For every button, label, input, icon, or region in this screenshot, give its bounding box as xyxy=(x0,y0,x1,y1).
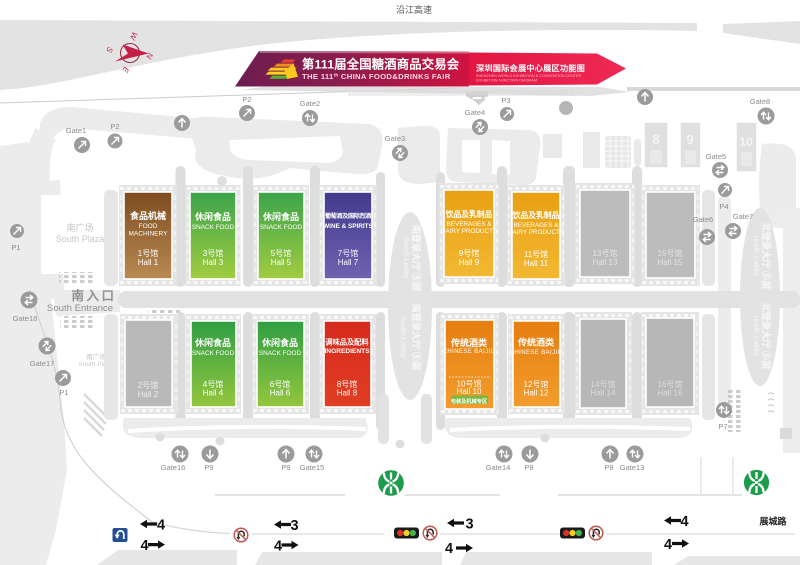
svg-text:7号馆: 7号馆 xyxy=(338,248,358,258)
svg-text:P9: P9 xyxy=(204,463,213,472)
svg-text:Hall 6: Hall 6 xyxy=(270,389,291,398)
svg-text:THE 111th CHINA FOOD&DRINKS FA: THE 111th CHINA FOOD&DRINKS FAIR xyxy=(302,72,451,81)
svg-text:Hall 10: Hall 10 xyxy=(457,387,482,396)
svg-text:2号馆: 2号馆 xyxy=(138,380,158,390)
svg-text:4号馆: 4号馆 xyxy=(203,379,223,389)
svg-text:Hall 14: Hall 14 xyxy=(591,389,616,398)
svg-text:Gate2: Gate2 xyxy=(300,99,320,108)
svg-text:P1: P1 xyxy=(11,243,20,252)
svg-text:9号馆: 9号馆 xyxy=(459,248,479,258)
svg-text:深圳国际会展中心展区功能图: 深圳国际会展中心展区功能图 xyxy=(476,63,585,73)
svg-text:P3: P3 xyxy=(501,96,510,105)
svg-text:南广场: 南广场 xyxy=(86,352,106,361)
svg-text:12号馆: 12号馆 xyxy=(524,379,549,389)
svg-text:Hall 1: Hall 1 xyxy=(138,258,159,267)
svg-text:Gate5: Gate5 xyxy=(706,152,726,161)
svg-text:8: 8 xyxy=(652,132,659,147)
svg-text:Gate6: Gate6 xyxy=(693,215,713,224)
svg-text:16号馆: 16号馆 xyxy=(658,379,683,389)
svg-text:调味品及配料: 调味品及配料 xyxy=(325,338,369,347)
svg-text:10: 10 xyxy=(739,135,753,149)
svg-text:WINE & SPIRITS: WINE & SPIRITS xyxy=(323,223,373,230)
svg-text:4: 4 xyxy=(140,538,148,554)
svg-text:6号馆: 6号馆 xyxy=(270,379,290,389)
svg-text:5号馆: 5号馆 xyxy=(271,248,291,258)
svg-text:休闲食品: 休闲食品 xyxy=(262,211,299,222)
svg-text:MACHINERY: MACHINERY xyxy=(129,231,169,238)
svg-text:P8: P8 xyxy=(524,463,533,472)
svg-text:饮品及乳制品: 饮品及乳制品 xyxy=(445,209,493,219)
svg-text:SHENZHEN WORLD EXHIBITION & CO: SHENZHEN WORLD EXHIBITION & CONVENTION C… xyxy=(476,74,582,78)
svg-text:Hall 13: Hall 13 xyxy=(593,258,618,267)
svg-text:Gate14: Gate14 xyxy=(486,463,511,472)
svg-text:葡萄酒及国际烈酒: 葡萄酒及国际烈酒 xyxy=(324,212,373,220)
svg-text:North Lobby: North Lobby xyxy=(752,236,761,277)
svg-text:EXHIBITION FUNCTION DIAGRAM: EXHIBITION FUNCTION DIAGRAM xyxy=(476,79,537,83)
svg-text:BEVERAGES &: BEVERAGES & xyxy=(514,222,560,229)
svg-text:3: 3 xyxy=(465,517,473,533)
svg-text:Gate4: Gate4 xyxy=(465,108,485,117)
svg-text:Hall 4: Hall 4 xyxy=(203,389,224,398)
svg-text:South Lobby: South Lobby xyxy=(399,316,408,358)
svg-text:北登录大厅 ⑤层: 北登录大厅 ⑤层 xyxy=(761,303,772,370)
svg-text:13号馆: 13号馆 xyxy=(593,248,618,258)
svg-text:Hall 11: Hall 11 xyxy=(524,259,549,268)
svg-text:Gate18: Gate18 xyxy=(13,314,38,323)
svg-text:Hall 7: Hall 7 xyxy=(338,258,359,267)
svg-text:Gate13: Gate13 xyxy=(620,463,645,472)
svg-text:Gate8: Gate8 xyxy=(750,97,770,106)
svg-text:South Lobby: South Lobby xyxy=(402,237,411,279)
svg-text:Gate17: Gate17 xyxy=(30,359,55,368)
svg-text:11号馆: 11号馆 xyxy=(524,249,548,259)
svg-text:P4: P4 xyxy=(719,202,728,211)
svg-text:P1: P1 xyxy=(59,388,68,397)
svg-text:FOOD: FOOD xyxy=(139,223,158,230)
svg-text:食品机械: 食品机械 xyxy=(129,210,166,221)
svg-text:第111届全国糖酒商品交易会: 第111届全国糖酒商品交易会 xyxy=(302,57,460,72)
svg-text:Hall 3: Hall 3 xyxy=(203,258,224,267)
svg-text:北登录大厅 ⑤层: 北登录大厅 ⑤层 xyxy=(761,223,772,290)
svg-text:展城路: 展城路 xyxy=(759,516,787,527)
svg-text:P9: P9 xyxy=(281,463,290,472)
svg-text:包装及机械专区: 包装及机械专区 xyxy=(451,397,488,405)
svg-text:Hall 5: Hall 5 xyxy=(271,258,292,267)
svg-text:8号馆: 8号馆 xyxy=(337,379,357,389)
svg-text:CHINESE BAIJIU: CHINESE BAIJIU xyxy=(510,350,563,356)
svg-text:15号馆: 15号馆 xyxy=(658,248,683,258)
svg-text:South Plaza: South Plaza xyxy=(56,234,105,244)
svg-text:3号馆: 3号馆 xyxy=(203,248,223,258)
svg-text:4: 4 xyxy=(157,518,165,534)
svg-text:Hall 2: Hall 2 xyxy=(138,390,159,399)
svg-text:9: 9 xyxy=(686,132,693,147)
svg-text:南入口: 南入口 xyxy=(71,288,116,303)
svg-text:沿江高速: 沿江高速 xyxy=(396,4,432,15)
svg-text:4: 4 xyxy=(664,537,672,553)
svg-text:南登录大厅 ⑤层: 南登录大厅 ⑤层 xyxy=(411,225,422,292)
svg-text:南登录大厅 ⑤层: 南登录大厅 ⑤层 xyxy=(411,304,422,371)
svg-text:Hall 12: Hall 12 xyxy=(524,389,549,398)
svg-text:14号馆: 14号馆 xyxy=(591,379,616,389)
svg-text:传统酒类: 传统酒类 xyxy=(517,337,555,348)
svg-text:休闲食品: 休闲食品 xyxy=(194,211,231,222)
svg-text:CHINESE BAIJIU: CHINESE BAIJIU xyxy=(443,349,496,355)
svg-text:P8: P8 xyxy=(604,463,613,472)
svg-text:South Entrance: South Entrance xyxy=(47,303,113,314)
svg-text:饮品及乳制品: 饮品及乳制品 xyxy=(512,210,560,220)
svg-text:Hall 16: Hall 16 xyxy=(658,389,683,398)
svg-text:3: 3 xyxy=(290,518,298,534)
svg-text:传统酒类: 传统酒类 xyxy=(450,337,488,348)
svg-text:4: 4 xyxy=(274,539,282,555)
svg-text:SNACK FOOD: SNACK FOOD xyxy=(259,350,302,357)
svg-text:BEVERAGES &: BEVERAGES & xyxy=(447,221,493,228)
svg-text:Hall 9: Hall 9 xyxy=(459,258,480,267)
svg-text:1号馆: 1号馆 xyxy=(138,248,158,258)
svg-text:Gate3: Gate3 xyxy=(385,134,405,143)
svg-text:P2: P2 xyxy=(110,122,119,131)
svg-text:Hall 8: Hall 8 xyxy=(337,389,358,398)
svg-text:Gate1: Gate1 xyxy=(66,126,86,135)
svg-text:Gate16: Gate16 xyxy=(161,463,186,472)
svg-text:SNACK FOOD: SNACK FOOD xyxy=(192,224,235,231)
svg-text:休闲食品: 休闲食品 xyxy=(261,337,298,348)
svg-text:Gate15: Gate15 xyxy=(300,463,325,472)
svg-text:南广场: 南广场 xyxy=(66,222,93,233)
svg-text:SNACK FOOD: SNACK FOOD xyxy=(192,350,235,357)
svg-text:INGREDIENTS: INGREDIENTS xyxy=(324,348,370,355)
svg-text:SNACK FOOD: SNACK FOOD xyxy=(260,224,303,231)
svg-text:4: 4 xyxy=(445,541,453,557)
svg-text:Hall 15: Hall 15 xyxy=(658,258,683,267)
svg-text:DAIRY PRODUCTS: DAIRY PRODUCTS xyxy=(508,229,564,236)
svg-text:休闲食品: 休闲食品 xyxy=(194,337,231,348)
svg-text:DAIRY PRODUCTS: DAIRY PRODUCTS xyxy=(441,228,497,235)
svg-text:P2: P2 xyxy=(242,95,251,104)
svg-text:North Lobby: North Lobby xyxy=(752,316,761,357)
svg-text:Gate7: Gate7 xyxy=(733,212,753,221)
svg-text:P7: P7 xyxy=(718,422,727,431)
svg-text:4: 4 xyxy=(680,514,688,530)
